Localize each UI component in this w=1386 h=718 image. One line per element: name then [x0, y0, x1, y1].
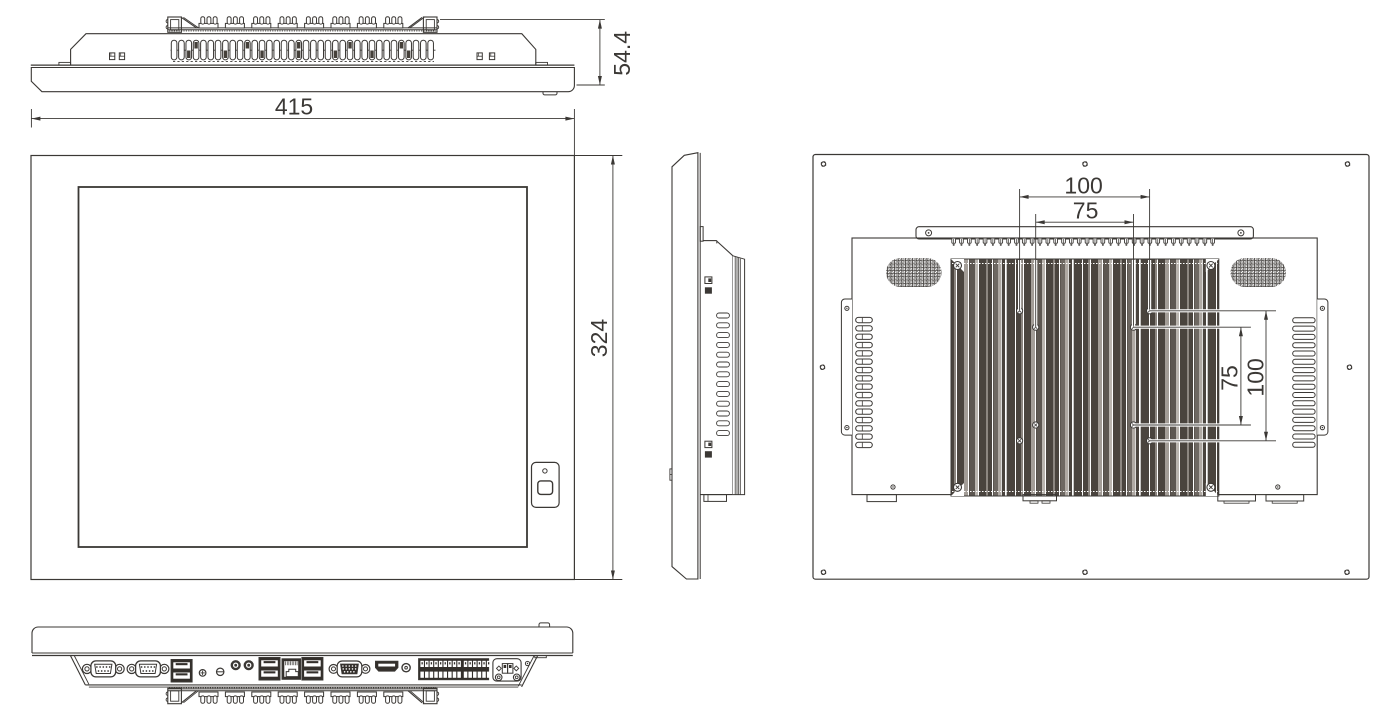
svg-text:54.4: 54.4	[609, 31, 635, 76]
svg-text:100: 100	[1243, 358, 1269, 396]
svg-text:75: 75	[1217, 365, 1243, 391]
svg-text:75: 75	[1073, 198, 1099, 224]
svg-text:324: 324	[586, 319, 612, 358]
svg-text:415: 415	[275, 94, 313, 120]
svg-text:100: 100	[1064, 172, 1102, 198]
